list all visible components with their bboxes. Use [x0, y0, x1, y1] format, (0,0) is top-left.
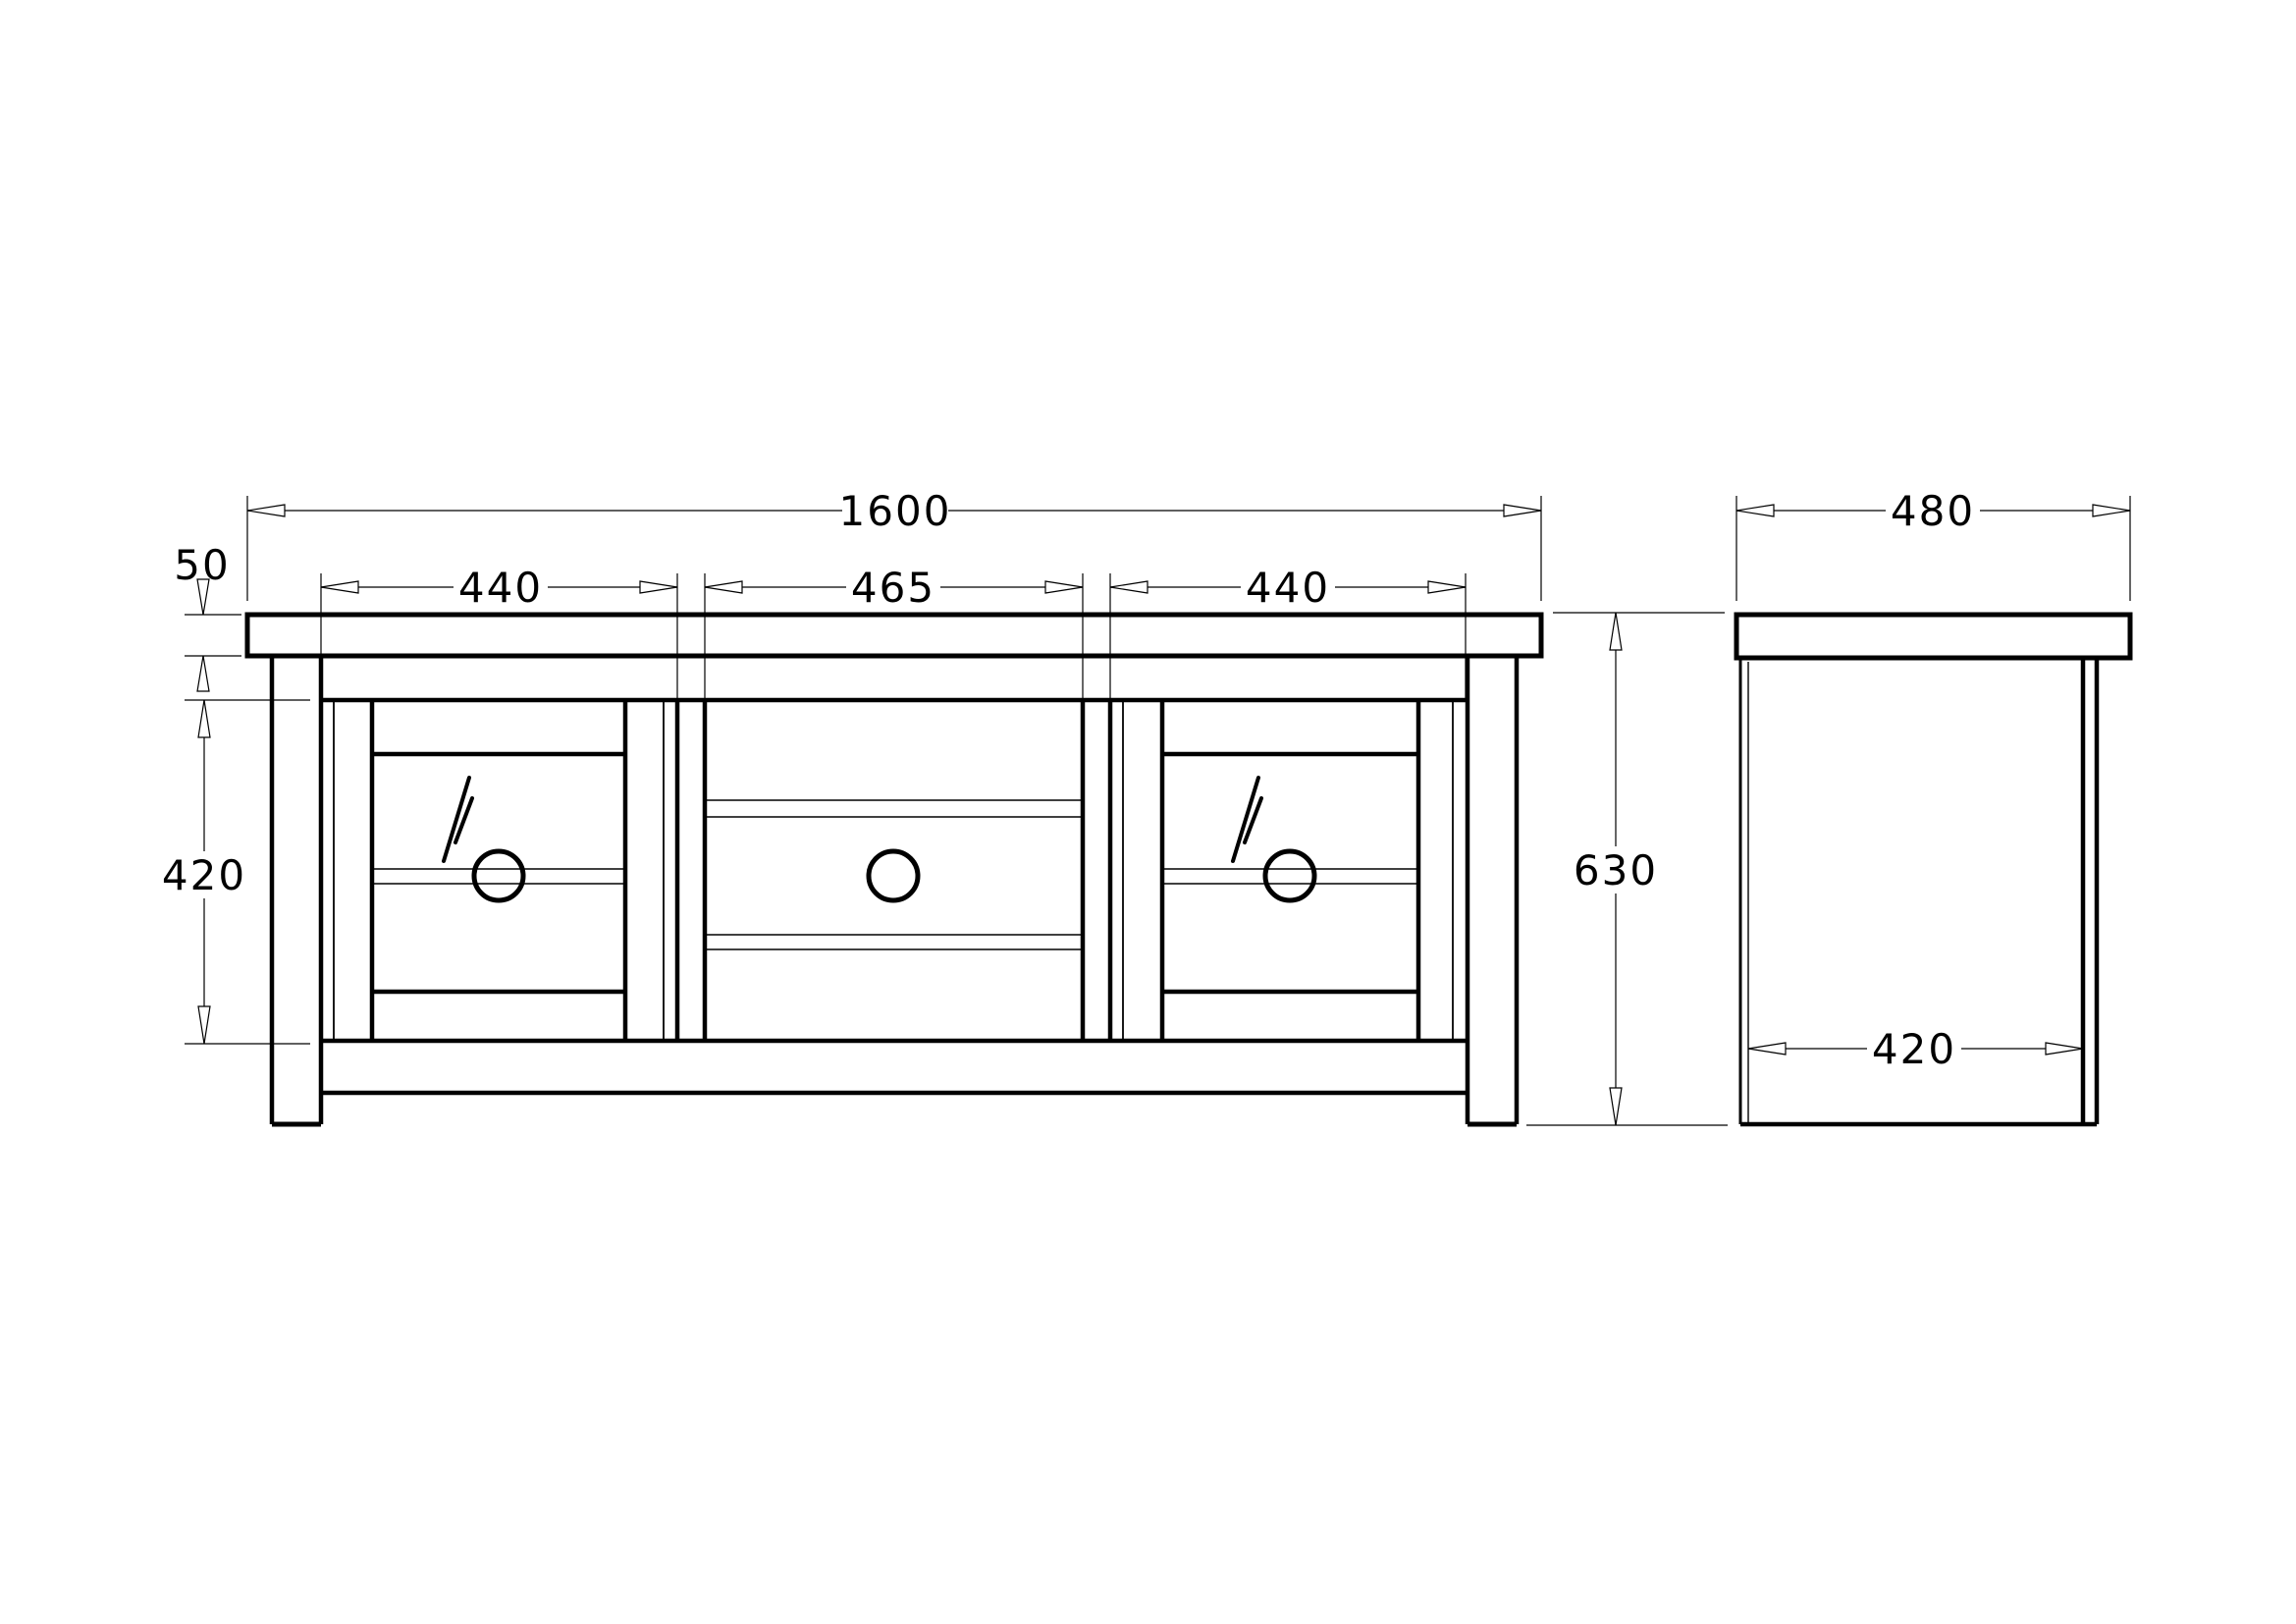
arrowhead-right [2093, 505, 2130, 516]
dim-label: 1600 [839, 487, 952, 535]
glass-pane-symbol [1233, 778, 1261, 861]
center-drawer-knob [869, 851, 918, 900]
arrowhead-up [198, 700, 210, 737]
left-glass-door [334, 700, 664, 1041]
dim-label: 465 [851, 564, 935, 612]
arrowhead-left [1748, 1043, 1786, 1055]
arrowhead-left [321, 581, 358, 593]
dim-label: 50 [174, 541, 230, 589]
arrowhead-left [1110, 581, 1148, 593]
arrowhead-left [705, 581, 742, 593]
dim-label: 630 [1574, 846, 1658, 894]
arrowhead-down [198, 1006, 210, 1044]
arrowhead-up [197, 656, 209, 691]
arrowhead-left [1736, 505, 1774, 516]
front-top-board [247, 615, 1541, 656]
right-door-knob [1265, 851, 1314, 900]
technical-drawing-canvas: 1600 50 440 [0, 0, 2296, 1624]
dim-overall-height: 630 [1526, 613, 1728, 1125]
dim-top-thickness: 50 [174, 541, 241, 691]
arrowhead-right [2046, 1043, 2083, 1055]
front-right-leg [1468, 656, 1517, 1124]
left-divider [677, 700, 705, 1041]
glass-pane-symbol [444, 778, 472, 861]
dim-inner-depth: 420 [1748, 1025, 2083, 1073]
center-drawer-stack [705, 800, 1083, 949]
drawing-sheet: 1600 50 440 [0, 0, 2296, 1624]
arrowhead-right [1045, 581, 1083, 593]
dim-left-door-width: 440 [321, 564, 677, 699]
front-left-leg [272, 656, 321, 1124]
dim-label: 440 [458, 564, 543, 612]
dim-label: 420 [1872, 1025, 1956, 1073]
dim-overall-depth: 480 [1736, 487, 2130, 601]
front-view [247, 615, 1541, 1124]
dim-opening-height: 420 [162, 700, 310, 1044]
dim-label: 420 [162, 851, 246, 899]
arrowhead-down [1610, 1088, 1622, 1125]
right-divider [1083, 700, 1110, 1041]
dim-right-door-width: 440 [1110, 564, 1466, 699]
arrowhead-right [1504, 505, 1541, 516]
dim-label: 480 [1891, 487, 1975, 535]
front-carcass-rails [321, 700, 1468, 1093]
arrowhead-right [640, 581, 677, 593]
arrowhead-up [1610, 613, 1622, 650]
arrowhead-right [1428, 581, 1466, 593]
dim-center-width: 465 [705, 564, 1083, 699]
dim-label: 440 [1246, 564, 1330, 612]
arrowhead-left [247, 505, 285, 516]
right-glass-door [1123, 700, 1453, 1041]
side-top-board [1736, 615, 2130, 658]
left-door-knob [474, 851, 523, 900]
dimensions: 1600 50 440 [162, 487, 2130, 1125]
